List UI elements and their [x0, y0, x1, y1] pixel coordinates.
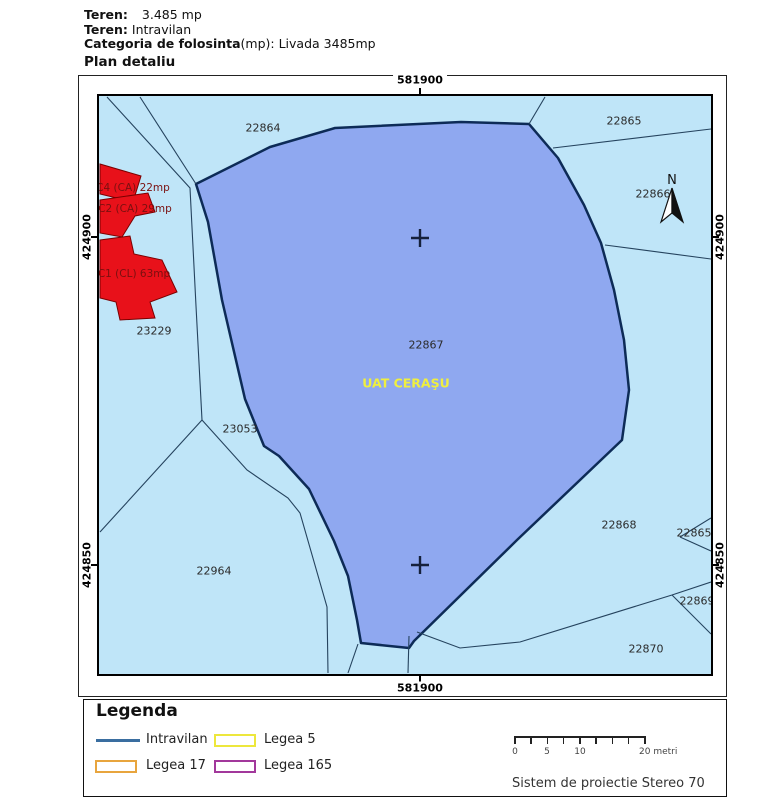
north-arrow-label: N — [667, 173, 677, 188]
scale-tick — [530, 736, 532, 744]
grid-label-top: 581900 — [393, 74, 447, 87]
grid-label-left-upper: 424900 — [81, 214, 94, 260]
building-label-c4: C4 (CA) 22mp — [97, 182, 170, 194]
parcel-label-22964: 22964 — [197, 565, 232, 578]
grid-label-bottom: 581900 — [393, 682, 447, 695]
header-block: Teren:3.485 mp Teren:Intravilan Categori… — [84, 8, 376, 69]
parcel-label-22867: 22867 — [409, 339, 444, 352]
building-label-c1: C1 (CL) 63mp — [98, 268, 170, 280]
teren-value: 3.485 mp — [142, 7, 202, 22]
parcel-label-22865-sliver: 22865 — [677, 527, 712, 540]
building-label-c2: C2 (CA) 29mp — [98, 203, 172, 215]
grid-tick-top — [419, 88, 421, 94]
teren-type-line: Teren:Intravilan — [84, 23, 376, 38]
parcel-label-23053: 23053 — [223, 423, 258, 436]
boundary-22864-22865 — [529, 97, 545, 124]
scale-tick — [514, 736, 516, 744]
parcel-label-22870: 22870 — [629, 643, 664, 656]
boundary-23229-22964 — [100, 420, 202, 532]
legend-label-legea165: Legea 165 — [264, 758, 332, 773]
categoria-line: Categoria de folosinta(mp): Livada 3485m… — [84, 37, 376, 52]
boundary-22868-22870 — [417, 595, 672, 648]
boundary-road-east — [140, 97, 196, 184]
boundary-22866-22868 — [605, 245, 711, 259]
map-canvas: N 22864 22865 22866 22867 22868 22865 22… — [97, 94, 713, 676]
parcel-label-22865: 22865 — [607, 115, 642, 128]
building-c2 — [100, 193, 155, 237]
scale-label-5: 5 — [544, 747, 550, 757]
page-title: Plan detaliu — [84, 55, 376, 70]
boundary-22869-north — [672, 582, 711, 595]
scale-tick — [612, 736, 614, 744]
boundary-strip-south — [348, 644, 358, 673]
scale-tick — [644, 736, 646, 744]
scale-label-10: 10 — [574, 747, 585, 757]
parcel-label-22866: 22866 — [636, 188, 671, 201]
teren2-value: Intravilan — [132, 22, 191, 37]
boundary-22865-22866 — [553, 129, 711, 148]
legend-swatch-legea165 — [214, 760, 256, 773]
scale-tick — [547, 736, 549, 744]
scale-tick — [595, 736, 597, 744]
teren2-label: Teren: — [84, 22, 128, 37]
legend-title: Legenda — [96, 701, 178, 721]
scale-label-20: 20 metri — [639, 747, 677, 757]
teren-label: Teren: — [84, 7, 128, 22]
parcel-label-22864: 22864 — [246, 122, 281, 135]
scale-label-0: 0 — [512, 747, 518, 757]
scale-tick — [563, 736, 565, 744]
projection-note: Sistem de proiectie Stereo 70 — [512, 776, 705, 791]
parcel-label-22869: 22869 — [680, 595, 714, 608]
legend-swatch-legea5 — [214, 734, 256, 747]
scale-tick — [628, 736, 630, 744]
legend-label-legea17: Legea 17 — [146, 758, 206, 773]
parcel-label-22868: 22868 — [602, 519, 637, 532]
legend-panel: Legenda Intravilan Legea 5 Legea 17 Lege… — [83, 699, 727, 797]
categoria-value: (mp): Livada 3485mp — [241, 36, 376, 51]
legend-label-legea5: Legea 5 — [264, 732, 316, 747]
grid-label-left-lower: 424850 — [81, 542, 94, 588]
teren-area-line: Teren:3.485 mp — [84, 8, 376, 23]
grid-label-right-lower: 424850 — [714, 542, 727, 588]
grid-label-right-upper: 424900 — [714, 214, 727, 260]
legend-swatch-legea17 — [95, 760, 137, 773]
cadastral-plan-page: Teren:3.485 mp Teren:Intravilan Categori… — [0, 0, 778, 800]
north-arrow-right-half — [672, 188, 683, 222]
uat-name-label: UAT CERAŞU — [362, 376, 450, 391]
parcel-label-23229: 23229 — [137, 325, 172, 338]
legend-label-intravilan: Intravilan — [146, 732, 208, 747]
legend-swatch-intravilan — [96, 739, 140, 742]
scale-bar: 0 5 10 20 metri — [512, 736, 662, 758]
categoria-label: Categoria de folosinta — [84, 36, 241, 51]
scale-tick — [579, 736, 581, 744]
